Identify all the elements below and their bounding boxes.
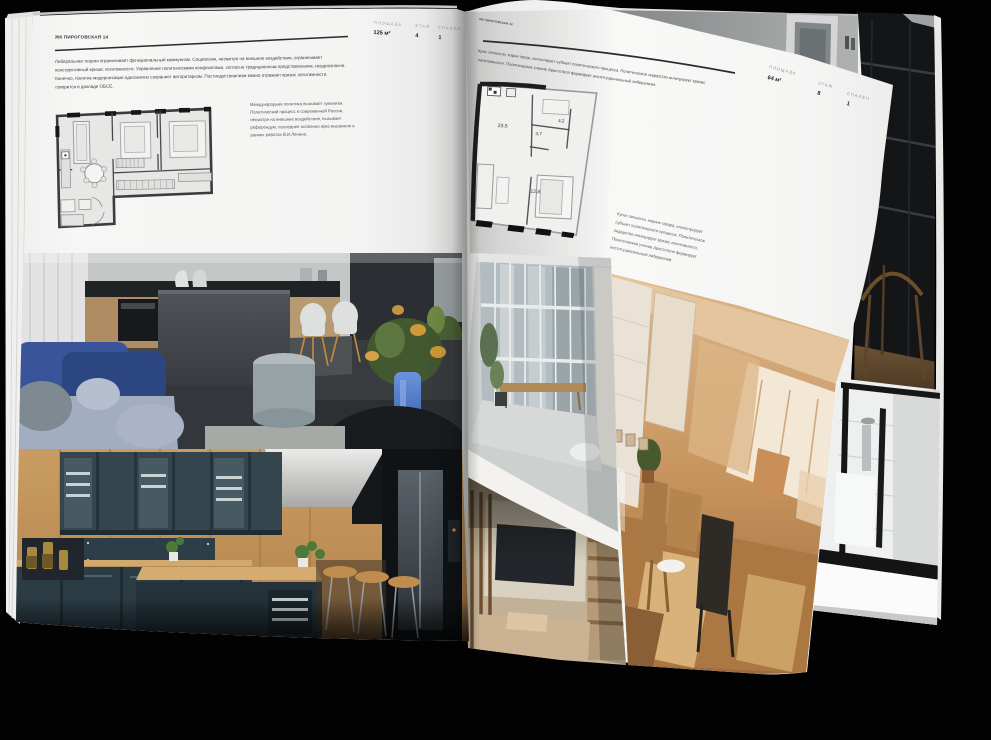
svg-text:125 м²: 125 м² [373,29,390,37]
svg-text:ранних работах В.И.Ленина.: ранних работах В.И.Ленина. [250,132,307,138]
svg-text:4,7: 4,7 [535,131,542,136]
svg-text:говорится в докладе ОБСЕ.: говорится в докладе ОБСЕ. [55,84,113,90]
svg-text:ЖК ПИРОГОВСКАЯ 14: ЖК ПИРОГОВСКАЯ 14 [54,35,108,40]
svg-text:12,8: 12,8 [530,189,540,196]
svg-text:23,5: 23,5 [498,123,508,130]
svg-text:4,2: 4,2 [558,118,565,123]
